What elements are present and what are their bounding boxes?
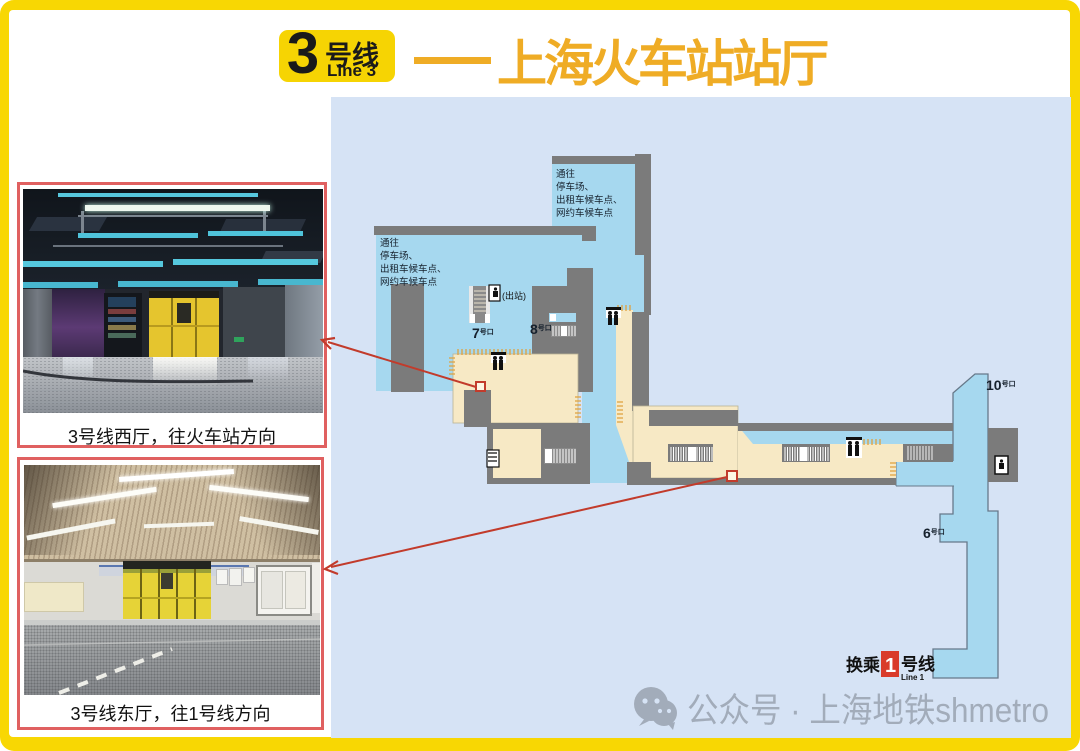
- svg-text:1: 1: [885, 655, 896, 677]
- svg-text:通往: 通往: [380, 237, 400, 249]
- svg-text:公众号 · 上海地铁shmetro: 公众号 · 上海地铁shmetro: [687, 692, 1049, 730]
- svg-text:通往: 通往: [556, 168, 576, 180]
- svg-text:Line 1: Line 1: [901, 673, 925, 682]
- svg-text:出租车候车点、: 出租车候车点、: [556, 194, 623, 206]
- svg-text:网约车候车点: 网约车候车点: [556, 207, 614, 219]
- svg-text:出租车候车点、: 出租车候车点、: [380, 263, 447, 275]
- svg-text:换乘: 换乘: [846, 655, 880, 675]
- svg-text:网约车候车点: 网约车候车点: [380, 276, 438, 288]
- svg-text:号线: 号线: [901, 654, 935, 674]
- svg-text:停车场、: 停车场、: [380, 250, 418, 262]
- svg-text:停车场、: 停车场、: [556, 181, 594, 193]
- svg-text:(出站): (出站): [502, 290, 526, 301]
